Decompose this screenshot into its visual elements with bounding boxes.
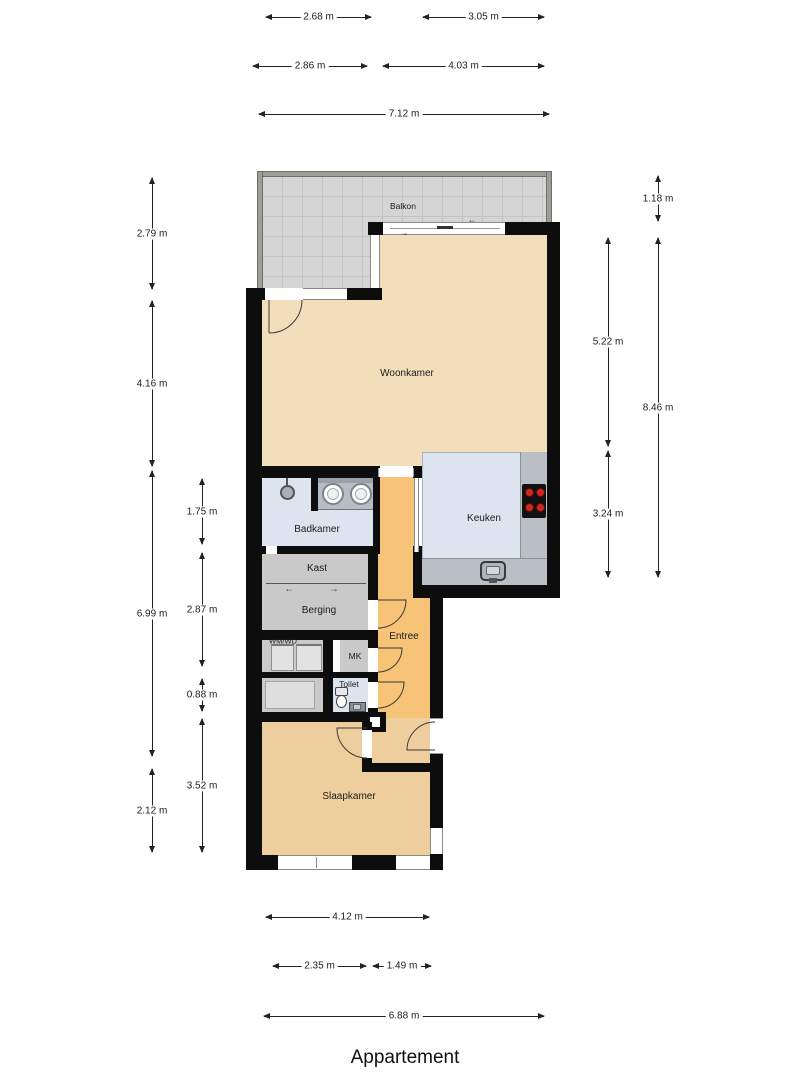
room-label-entree: Entree [389,632,418,642]
dim-line: 4.03 m [382,58,545,74]
cooktop-burner-icon [536,503,545,512]
toilet-bowl-icon [336,695,347,708]
room-label-balkon: Balkon [390,202,416,211]
dim-label: 2.12 m [134,805,171,816]
dim-line: 7.12 m [258,106,550,122]
slaapkamer-door-opening [362,730,372,758]
dim-line: 2.87 m [194,552,210,667]
dim-line: 4.16 m [144,300,160,467]
washer-icon [271,644,294,671]
wall-badkamer-right [373,466,380,551]
front-door-opening [430,718,443,754]
dim-label: 2.86 m [292,61,329,72]
dim-label: 7.12 m [386,109,423,120]
vanity-sink-basin [327,488,339,500]
balcony-wall-right [546,171,552,223]
wall-badkamer-top [246,466,380,478]
room-slaapkamer-floor [262,718,430,855]
cooktop-burner-icon [525,488,534,497]
cooktop-burner-icon [525,503,534,512]
dim-label: 3.24 m [590,509,627,520]
dim-line: 1.49 m [372,958,432,974]
dim-line: 3.52 m [194,718,210,853]
dim-line: 8.46 m [650,237,666,578]
window-slaapkamer-bottom-2 [396,855,430,870]
room-entree-floor-upper [378,472,415,598]
room-label-keuken: Keuken [467,514,501,524]
dim-label: 8.46 m [640,402,677,413]
room-label-woonkamer: Woonkamer [380,369,434,379]
dim-line: 2.35 m [272,958,367,974]
shower-head-icon [280,485,295,500]
dim-label: 4.12 m [329,912,366,923]
dim-line: 1.75 m [194,478,210,545]
dim-line: 6.88 m [263,1008,545,1024]
dryer-icon [296,644,322,671]
dim-line: 6.99 m [144,470,160,757]
kitchen-faucet-icon [489,578,497,583]
toilet-door-opening [368,682,378,708]
wall-left [246,288,262,870]
window-slaapkamer-bottom-1 [278,855,352,870]
room-balkon-floor-left [263,177,380,289]
dim-line: 1.18 m [650,175,666,222]
dim-line: 2.79 m [144,177,160,290]
slider-arrow-right-icon: → [400,229,409,238]
wall-badkamer-bottom [262,546,380,554]
dim-label: 1.75 m [184,506,221,517]
dim-label: 4.03 m [445,61,482,72]
badkamer-door-opening [266,546,277,554]
room-label-mk: MK [349,652,362,661]
wall-entree-bottom [362,763,432,772]
wall-balcony-bottom-right [347,288,382,300]
dim-label: 2.35 m [301,961,338,972]
room-label-slaapkamer: Slaapkamer [322,792,375,802]
slider-arrow-left-icon: ← [468,216,477,225]
kast-slider-arrow-right-icon: → [330,585,339,594]
room-label-kast: Kast [307,564,327,574]
corridor-opening [378,468,414,477]
room-label-toilet: Toilet [339,680,359,689]
room-label-wmwd: WM/WD [269,637,297,645]
dim-line: 5.22 m [600,237,616,447]
wall-slaapkamer-top [262,712,374,722]
room-keuken-floor [422,452,520,558]
wall-kitchen-bottom [413,585,560,598]
dim-label: 1.49 m [384,961,421,972]
closet-counter [265,681,315,709]
dim-label: 5.22 m [590,337,627,348]
vanity-sink-basin [355,488,367,500]
wall-corridor-kitchen [413,546,422,598]
wall-slaap-door-top [362,722,372,730]
cooktop-burner-icon [536,488,545,497]
dim-label: 4.16 m [134,378,171,389]
window-slaapkamer-right [430,828,443,854]
dim-line: 2.68 m [265,9,372,25]
wall-kitchen-left-post [413,466,422,478]
slider-handle [437,226,453,229]
dim-label: 2.87 m [184,604,221,615]
dim-line: 0.88 m [194,678,210,712]
toilet-sink-basin [353,704,361,710]
wall-top [368,222,383,235]
dim-label: 6.88 m [386,1011,423,1022]
wall-balcony-bottom-left [246,288,265,300]
kitchen-sink-basin [486,566,500,575]
room-label-badkamer: Badkamer [294,525,340,535]
dim-label: 3.05 m [465,12,502,23]
dim-label: 0.88 m [184,690,221,701]
kast-slider-arrow-left-icon: ← [285,585,294,594]
wall-right-upper [547,222,560,598]
window-mullion [316,857,317,868]
balcony-wall-top [257,171,552,177]
balcony-wall-left [257,171,263,299]
kast-slider-track [266,583,366,584]
mk-door-opening [368,648,378,672]
balcony-door-opening [265,288,303,300]
kitchen-pass-divider [414,478,419,552]
wall-badkamer-stub [311,478,318,511]
dim-label: 1.18 m [640,193,677,204]
dim-label: 2.68 m [300,12,337,23]
plan-title: Appartement [351,1047,460,1069]
dim-line: 3.24 m [600,450,616,578]
dim-line: 2.12 m [144,768,160,853]
dim-line: 3.05 m [422,9,545,25]
room-label-berging: Berging [302,606,336,616]
dim-label: 6.99 m [134,608,171,619]
dim-line: 2.86 m [252,58,368,74]
dim-label: 2.79 m [134,228,171,239]
wall-toilet-top [262,672,368,678]
window-balcony-divider [370,235,380,288]
floorplan-canvas: ← → ← → Balkon Woonkamer Keuken Badkamer… [0,0,810,1080]
berging-door-opening [368,600,378,630]
balcony-window [303,288,347,300]
dim-line: 4.12 m [265,909,430,925]
dim-label: 3.52 m [184,780,221,791]
